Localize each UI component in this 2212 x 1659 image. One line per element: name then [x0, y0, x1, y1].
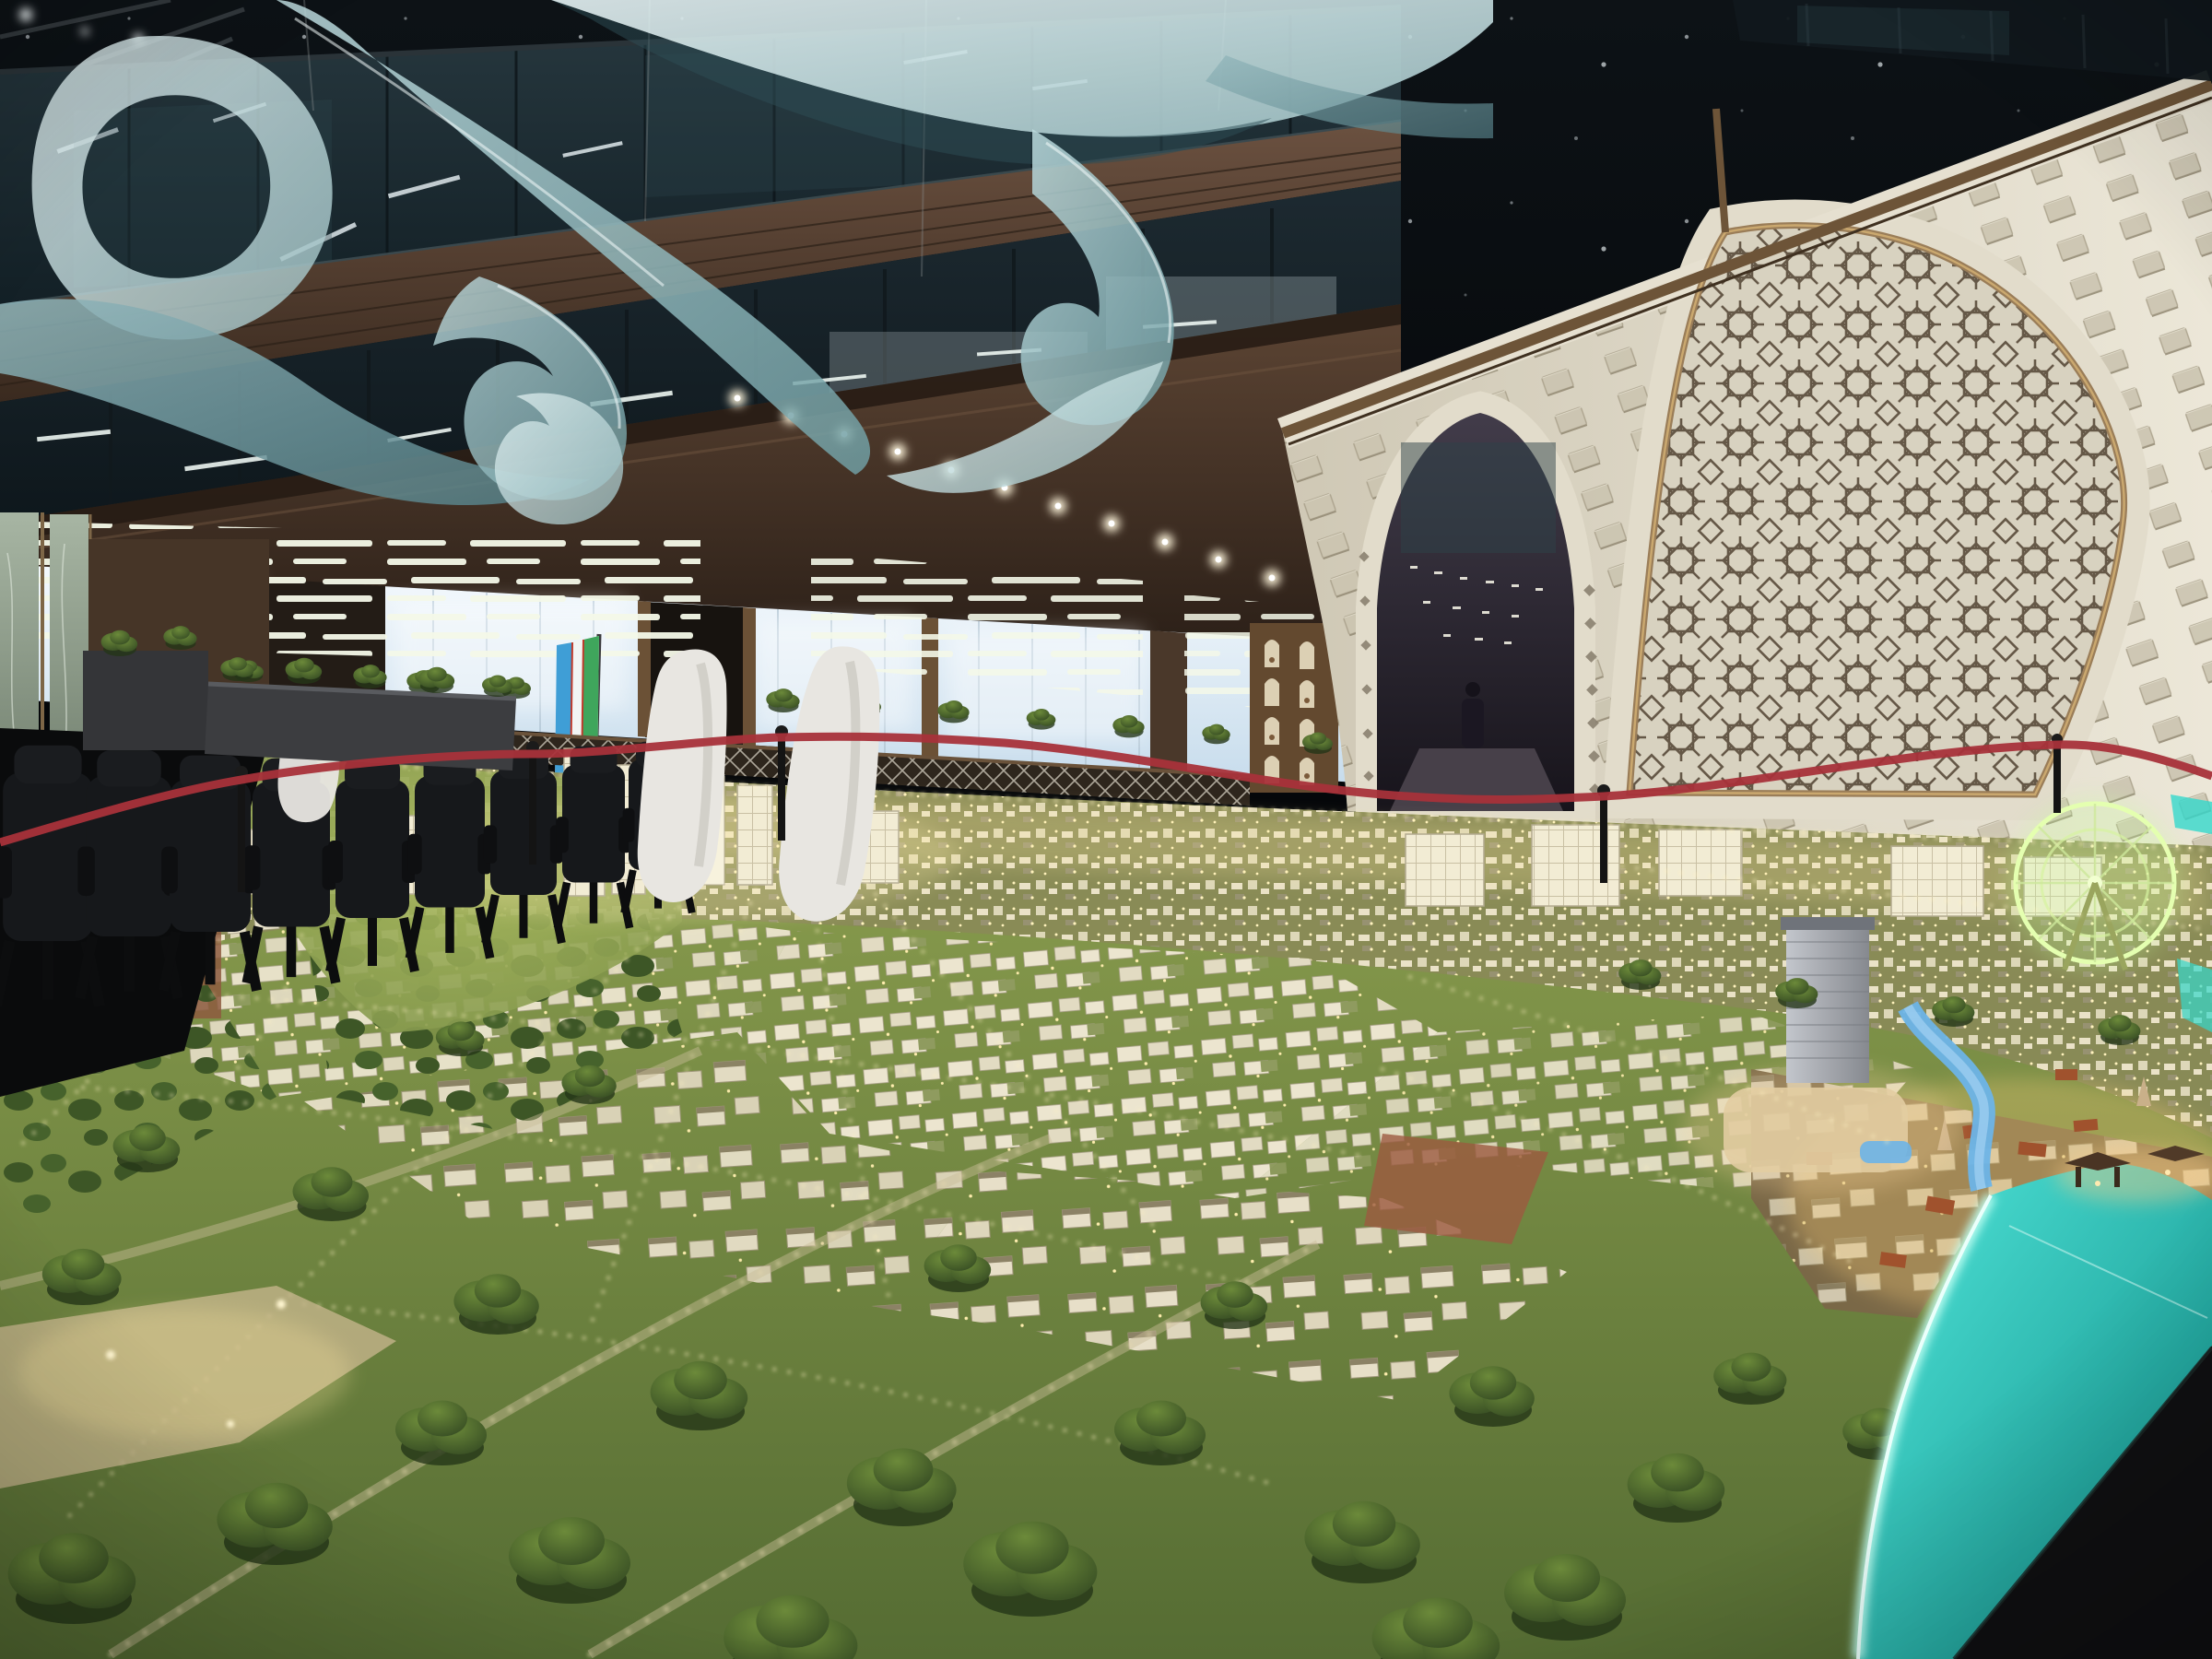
- photo-canvas: [0, 0, 2212, 1659]
- vignette: [0, 0, 2212, 1659]
- photo-stage: [0, 0, 2212, 1659]
